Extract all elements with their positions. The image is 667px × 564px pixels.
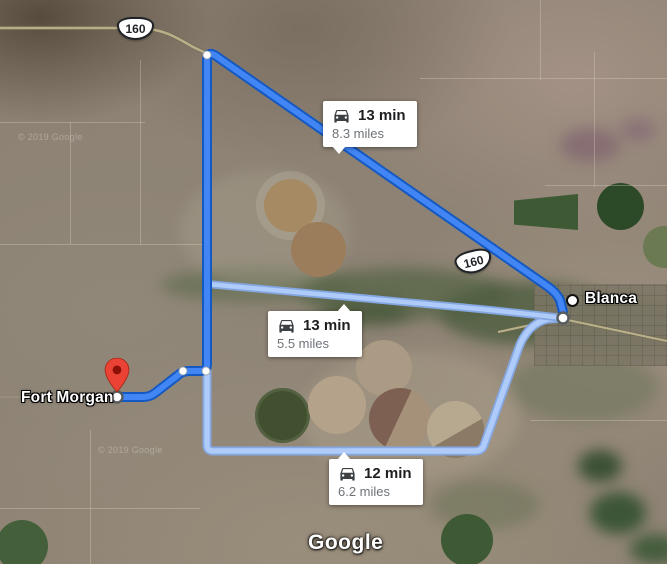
route-duration: 12 min bbox=[364, 465, 412, 482]
satellite-map-canvas[interactable]: © 2019 Google © 2019 Google bbox=[0, 0, 667, 564]
shield-number: 160 bbox=[462, 252, 485, 270]
google-logo[interactable]: Google bbox=[308, 531, 383, 555]
route-distance: 5.5 miles bbox=[277, 336, 351, 351]
route-duration: 13 min bbox=[358, 107, 406, 124]
car-icon bbox=[332, 106, 351, 125]
route-alternate-middle[interactable] bbox=[207, 284, 563, 318]
route-label-middle[interactable]: 13 min 5.5 miles bbox=[268, 311, 362, 357]
car-icon bbox=[277, 316, 296, 335]
shield-number: 160 bbox=[125, 22, 145, 36]
route-distance: 6.2 miles bbox=[338, 484, 412, 499]
place-label-blanca[interactable]: Blanca bbox=[585, 290, 637, 308]
blanca-town-dot[interactable] bbox=[566, 294, 579, 307]
route-duration: 13 min bbox=[303, 317, 351, 334]
car-icon bbox=[338, 464, 357, 483]
route-label-primary[interactable]: 13 min 8.3 miles bbox=[323, 101, 417, 147]
route-alternate-south[interactable] bbox=[207, 318, 563, 451]
route-endpoint-blanca[interactable] bbox=[558, 313, 569, 324]
place-label-fort-morgan[interactable]: Fort Morgan bbox=[21, 389, 114, 407]
route-distance: 8.3 miles bbox=[332, 126, 406, 141]
destination-pin-icon[interactable] bbox=[105, 358, 129, 392]
route-label-south[interactable]: 12 min 6.2 miles bbox=[329, 459, 423, 505]
